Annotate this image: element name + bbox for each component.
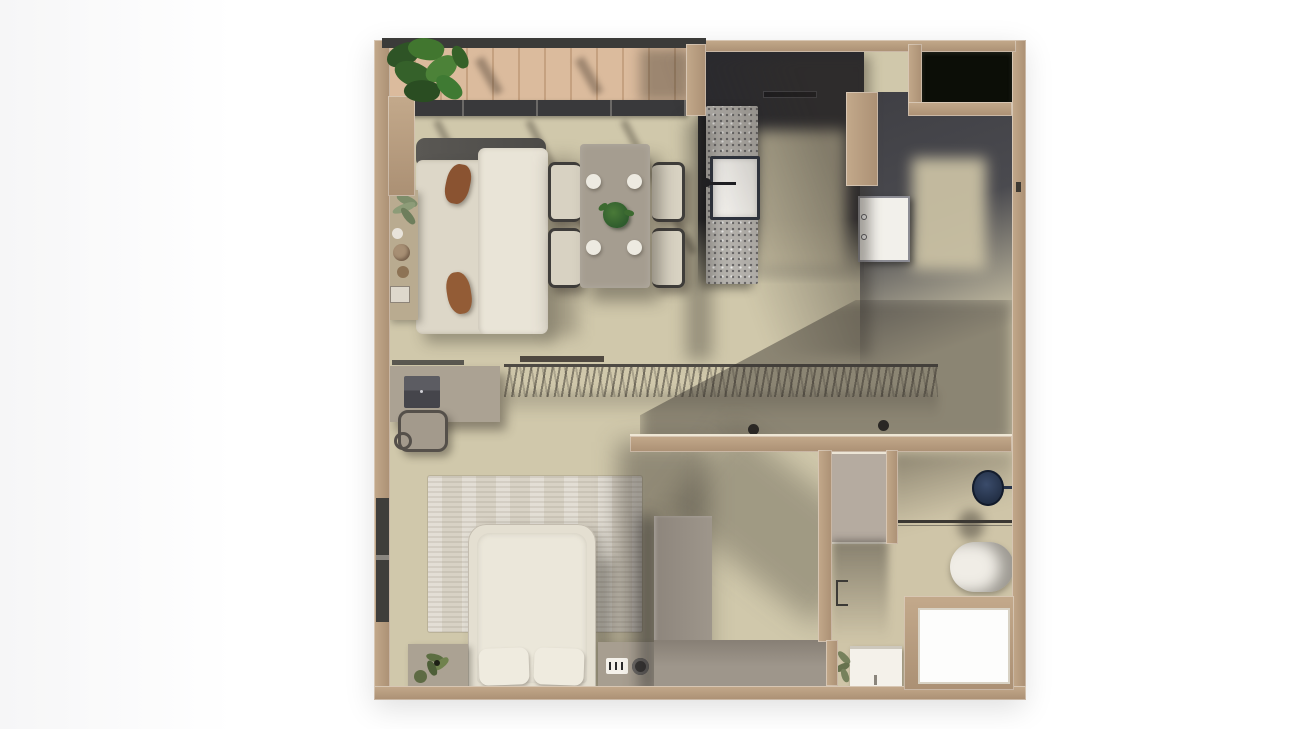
wall-shelf-bar <box>520 356 604 362</box>
plate <box>627 174 642 189</box>
tray <box>390 286 410 303</box>
vanity-sink <box>850 646 902 688</box>
dining-chair <box>548 162 581 222</box>
dining-table <box>580 144 650 288</box>
wall-bathroom-west <box>886 450 898 544</box>
wall-right <box>1012 40 1026 700</box>
sofa <box>416 138 550 334</box>
desk-shelf-bar <box>392 360 464 365</box>
bed-pillow <box>478 647 529 686</box>
navy-basin <box>972 470 1004 506</box>
cooktop <box>764 92 816 97</box>
desk-chair-base <box>394 432 412 450</box>
wardrobe-rail-hangers <box>504 364 938 397</box>
wall-closet-bottom <box>908 102 1012 116</box>
bedroom-window <box>376 498 389 622</box>
vase-taupe <box>393 244 410 261</box>
vase-white <box>392 228 403 239</box>
speaker <box>632 658 649 675</box>
wall-kitchen-entry <box>846 92 878 186</box>
bathtub <box>950 542 1014 592</box>
wall-stub-balcony-right <box>686 44 706 116</box>
laptop-key-dot <box>420 390 423 393</box>
vanity-drain <box>874 675 877 685</box>
door-hinge <box>861 214 867 220</box>
sofa-chaise <box>478 148 548 334</box>
interior-door <box>858 196 910 262</box>
plate <box>586 240 601 255</box>
utility-closet-interior <box>922 50 1012 102</box>
moss-ball <box>414 670 427 683</box>
wardrobe-horizontal <box>654 640 828 688</box>
entry-door-handle-icon <box>1016 182 1021 192</box>
shower-floor-top <box>918 608 1010 684</box>
dining-chair <box>652 228 685 288</box>
bed-pillow <box>533 647 584 686</box>
console-table <box>388 190 418 320</box>
dining-chair <box>652 162 685 222</box>
balcony-plant <box>382 36 476 112</box>
dining-chair <box>548 228 581 288</box>
door-jamb-mark <box>836 580 848 606</box>
laptop <box>404 376 440 408</box>
closet-floor-panel <box>830 452 892 544</box>
apartment-interior <box>388 48 1014 688</box>
sink-faucet-base <box>702 178 711 187</box>
plate <box>586 174 601 189</box>
door-hinge <box>861 234 867 240</box>
wall-top <box>698 40 1016 52</box>
vase-small <box>397 266 409 278</box>
double-bed <box>468 524 596 688</box>
floor-plan-render <box>0 0 1296 729</box>
nightstand-left <box>408 644 468 688</box>
kitchen-sink <box>710 156 760 220</box>
plate <box>627 240 642 255</box>
nightstand-right <box>598 642 654 688</box>
alarm-clock <box>606 658 628 674</box>
glass-screen <box>886 520 1014 523</box>
plant-pot-dot <box>434 660 440 666</box>
stool-dot <box>878 420 889 431</box>
glass-screen-reflection <box>886 525 1014 526</box>
wall-closet-west <box>818 450 832 642</box>
wall-vanity-left <box>826 640 838 686</box>
